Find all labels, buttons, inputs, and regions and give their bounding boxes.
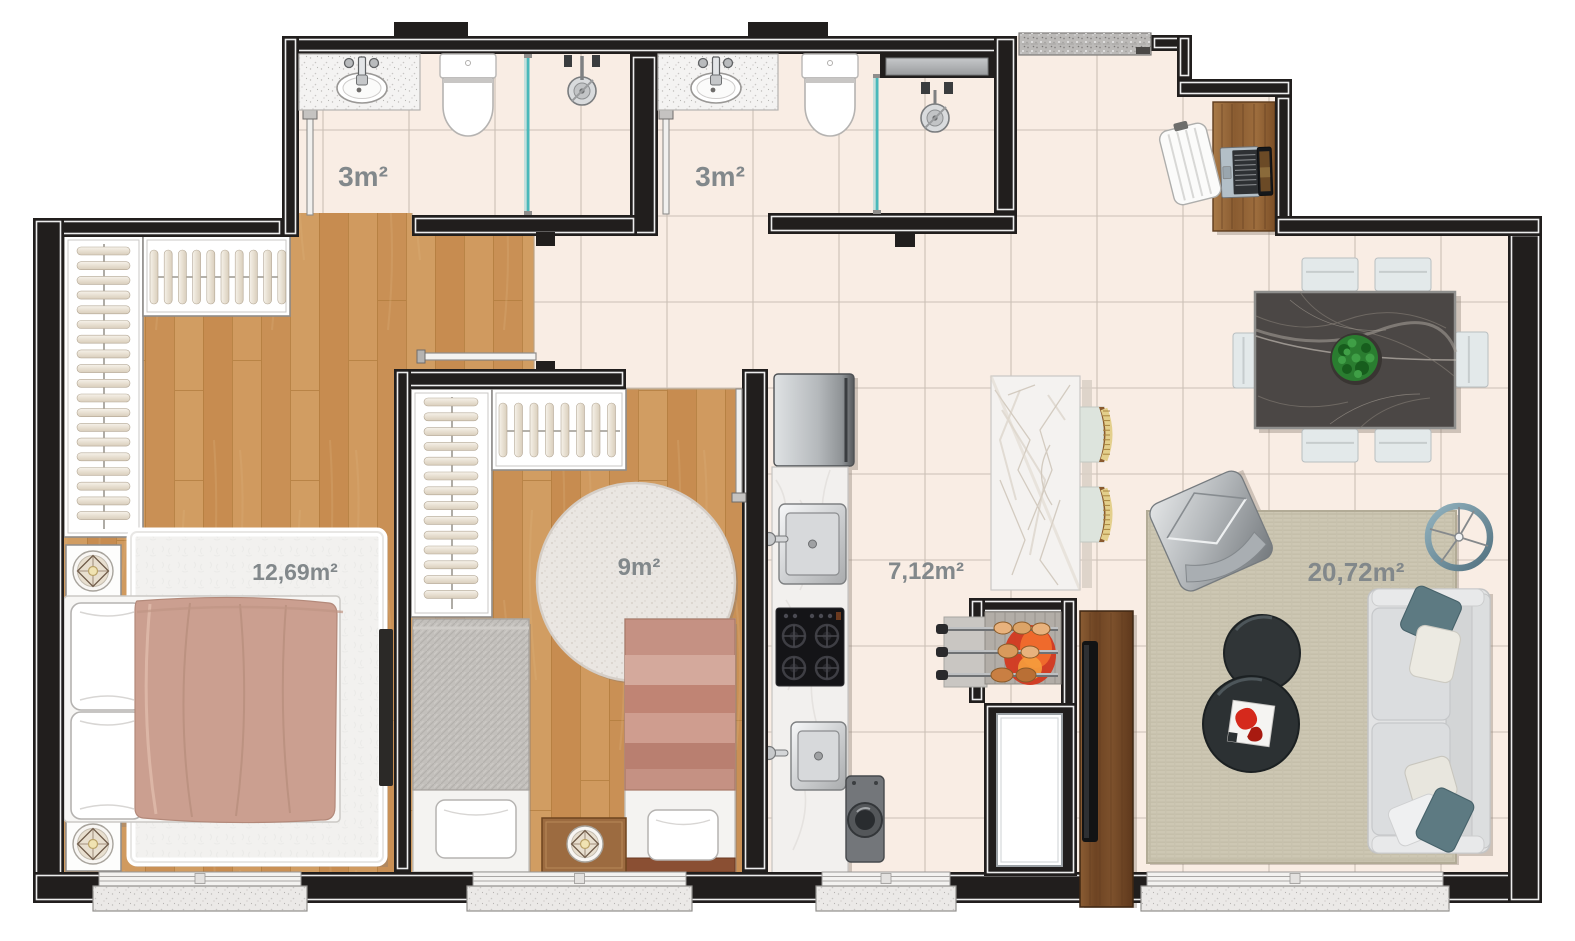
- svg-text:9m²: 9m²: [618, 554, 661, 581]
- svg-text:20,72m²: 20,72m²: [1308, 557, 1405, 587]
- svg-text:7,12m²: 7,12m²: [888, 558, 964, 585]
- svg-text:3m²: 3m²: [338, 161, 388, 192]
- svg-text:12,69m²: 12,69m²: [252, 559, 338, 585]
- svg-text:3m²: 3m²: [695, 161, 745, 192]
